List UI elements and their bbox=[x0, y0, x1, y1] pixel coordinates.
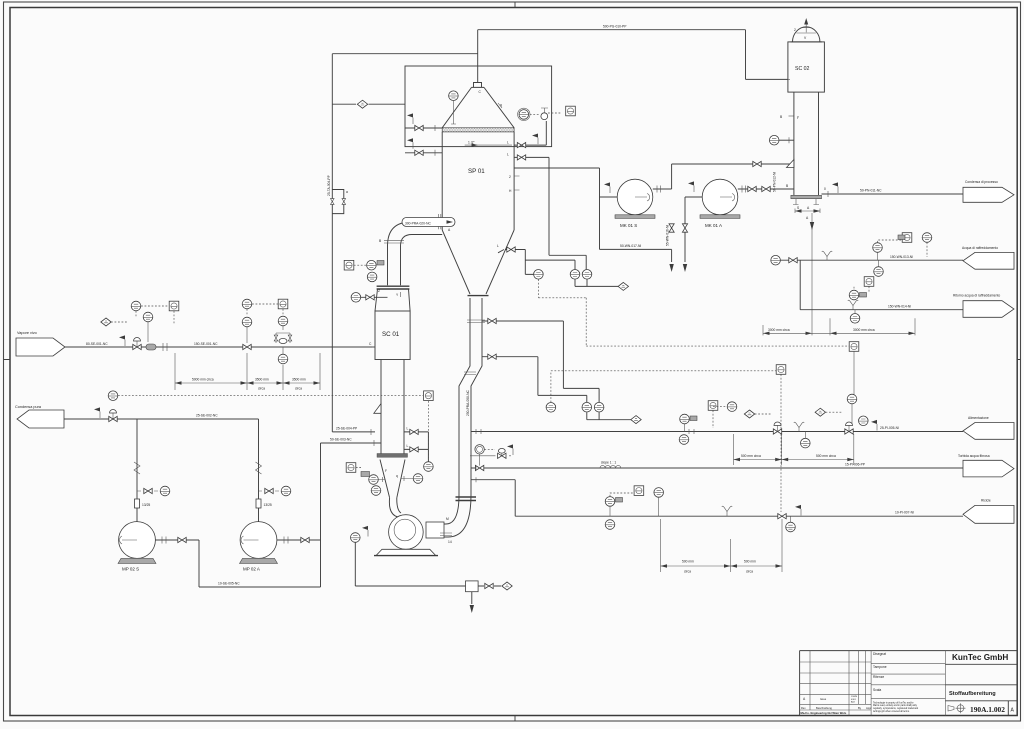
svg-text:14: 14 bbox=[448, 540, 452, 544]
svg-text:Technologie in proprty of KunT: Technologie in proprty of KunTec and/or bbox=[873, 701, 914, 704]
svg-text:Ricicle: Ricicle bbox=[981, 499, 991, 503]
svg-text:190A.1.002: 190A.1.002 bbox=[970, 705, 1005, 714]
svg-text:15WN: 15WN bbox=[851, 696, 857, 698]
svg-text:MP 02 S: MP 02 S bbox=[122, 567, 139, 572]
svg-text:150-WN-013-NI: 150-WN-013-NI bbox=[890, 255, 913, 259]
svg-text:V: V bbox=[804, 36, 807, 40]
svg-text:80-SE-001-NC: 80-SE-001-NC bbox=[86, 342, 108, 346]
svg-text:10-PI-007-NI: 10-PI-007-NI bbox=[895, 511, 914, 515]
svg-text:Ma.Co. Engineering GH Wien W: Ma.Co. Engineering GH Wien Wels bbox=[801, 711, 847, 715]
svg-text:Condensa di processo: Condensa di processo bbox=[965, 180, 998, 184]
svg-text:55-WN-016-NI: 55-WN-016-NI bbox=[666, 225, 670, 246]
svg-text:Disegnat: Disegnat bbox=[873, 652, 886, 656]
svg-text:150-WN-014-NI: 150-WN-014-NI bbox=[888, 305, 911, 309]
svg-text:Appr: Appr bbox=[866, 706, 872, 710]
svg-text:A: A bbox=[807, 206, 810, 210]
svg-text:SP 01: SP 01 bbox=[468, 168, 485, 175]
svg-text:M: M bbox=[446, 517, 449, 521]
svg-text:2: 2 bbox=[794, 28, 796, 32]
svg-text:MK 01 A: MK 01 A bbox=[705, 223, 722, 228]
svg-text:500 mm: 500 mm bbox=[682, 560, 694, 564]
svg-text:2: 2 bbox=[509, 175, 511, 179]
svg-text:3000 mm circa: 3000 mm circa bbox=[853, 328, 875, 332]
svg-text:q: q bbox=[396, 474, 398, 478]
svg-text:SC 02: SC 02 bbox=[795, 66, 810, 72]
svg-text:13/25: 13/25 bbox=[142, 503, 150, 507]
svg-text:A: A bbox=[1011, 708, 1015, 714]
svg-text:300-PRA-020-NC: 300-PRA-020-NC bbox=[405, 222, 431, 226]
svg-text:500 mm circa: 500 mm circa bbox=[741, 454, 761, 458]
svg-text:5000 mm circa: 5000 mm circa bbox=[192, 378, 214, 382]
svg-text:By: By bbox=[858, 706, 862, 710]
svg-text:L: L bbox=[507, 141, 509, 145]
svg-text:Beschreibung: Beschreibung bbox=[816, 706, 832, 710]
svg-text:circa: circa bbox=[746, 570, 753, 574]
svg-text:50-WN-017-NI: 50-WN-017-NI bbox=[620, 244, 641, 248]
svg-text:Tampone: Tampone bbox=[873, 665, 887, 669]
svg-text:15-PI-006-PP: 15-PI-006-PP bbox=[845, 463, 866, 467]
svg-text:Stoffaufbereitung: Stoffaufbereitung bbox=[949, 691, 996, 697]
svg-text:Vapore vivo: Vapore vivo bbox=[17, 331, 37, 335]
svg-text:25-PI-005-NI: 25-PI-005-NI bbox=[880, 426, 899, 430]
svg-text:4301: 4301 bbox=[851, 699, 857, 701]
svg-text:Condensa pura: Condensa pura bbox=[15, 405, 42, 409]
svg-text:25-SE-004-PP: 25-SE-004-PP bbox=[336, 427, 358, 431]
svg-text:A02: A02 bbox=[851, 701, 856, 704]
svg-text:MP 02 A: MP 02 A bbox=[243, 567, 260, 572]
svg-text:L: L bbox=[407, 427, 409, 431]
svg-text:MK 01 S: MK 01 S bbox=[620, 223, 637, 228]
svg-text:C: C bbox=[369, 342, 372, 346]
svg-text:Issue: Issue bbox=[820, 697, 827, 701]
svg-text:MaCo read, entirely and in par: MaCo read, entirely and in parts shall j… bbox=[873, 704, 918, 707]
svg-text:10-SE-005-NC: 10-SE-005-NC bbox=[218, 582, 240, 586]
svg-text:circa: circa bbox=[258, 387, 265, 391]
svg-text:Acqua di raffreddamento: Acqua di raffreddamento bbox=[962, 246, 998, 250]
svg-text:regularly, symposiums, registe: regularly, symposiums, registered tradem… bbox=[873, 707, 919, 710]
svg-text:25-SE-002-NC: 25-SE-002-NC bbox=[196, 414, 218, 418]
svg-text:A: A bbox=[806, 216, 809, 220]
svg-text:500 mm: 500 mm bbox=[744, 560, 756, 564]
svg-text:y: y bbox=[797, 115, 799, 119]
svg-text:3500 mm: 3500 mm bbox=[292, 378, 306, 382]
svg-text:L: L bbox=[507, 153, 509, 157]
svg-text:Ritenze: Ritenze bbox=[873, 675, 884, 679]
svg-text:50-SE-003-NC: 50-SE-003-NC bbox=[330, 438, 352, 442]
svg-text:500-PG-010-PP: 500-PG-010-PP bbox=[603, 25, 627, 29]
svg-text:13/25: 13/25 bbox=[264, 503, 272, 507]
svg-text:50-PN-011-NC: 50-PN-011-NC bbox=[860, 189, 882, 193]
svg-text:Alimentazione: Alimentazione bbox=[968, 416, 989, 420]
svg-text:B: B bbox=[379, 239, 382, 243]
svg-text:1 /2": 1 /2" bbox=[468, 140, 475, 144]
svg-text:150-SE-001-NC: 150-SE-001-NC bbox=[194, 342, 218, 346]
svg-text:3000 mm circa: 3000 mm circa bbox=[768, 328, 790, 332]
svg-text:C: C bbox=[479, 90, 482, 94]
svg-text:500 mm circa: 500 mm circa bbox=[816, 454, 836, 458]
svg-text:25-TA-004-PP: 25-TA-004-PP bbox=[327, 174, 331, 196]
svg-text:a: a bbox=[346, 190, 348, 194]
svg-text:L: L bbox=[497, 244, 499, 248]
svg-text:3500 mm: 3500 mm bbox=[255, 378, 269, 382]
svg-text:S: S bbox=[797, 206, 800, 210]
svg-text:KunTec GmbH: KunTec GmbH bbox=[952, 653, 1008, 662]
svg-text:B: B bbox=[786, 184, 789, 188]
svg-text:A: A bbox=[448, 228, 451, 232]
svg-text:SC 01: SC 01 bbox=[382, 331, 400, 338]
svg-text:Ritorno acqua di raffreddament: Ritorno acqua di raffreddamento bbox=[953, 294, 1000, 298]
svg-text:A: A bbox=[803, 697, 806, 701]
svg-text:0: 0 bbox=[824, 187, 826, 191]
svg-text:B: B bbox=[780, 115, 783, 119]
svg-text:Y: Y bbox=[396, 293, 399, 297]
svg-text:writings gbr when covered all: writings gbr when covered all terms. bbox=[873, 710, 910, 713]
svg-text:250-PRA-008-NC: 250-PRA-008-NC bbox=[466, 390, 470, 416]
svg-text:Rev: Rev bbox=[801, 706, 806, 710]
svg-text:H: H bbox=[509, 189, 512, 193]
svg-text:circa: circa bbox=[684, 570, 691, 574]
svg-text:L: L bbox=[407, 444, 409, 448]
svg-text:Scala: Scala bbox=[873, 688, 881, 692]
svg-text:slope 1 : 1: slope 1 : 1 bbox=[601, 461, 616, 465]
svg-text:Torbida acqua fibrosa: Torbida acqua fibrosa bbox=[958, 454, 990, 458]
svg-text:F: F bbox=[385, 469, 387, 473]
svg-text:circa: circa bbox=[295, 387, 302, 391]
